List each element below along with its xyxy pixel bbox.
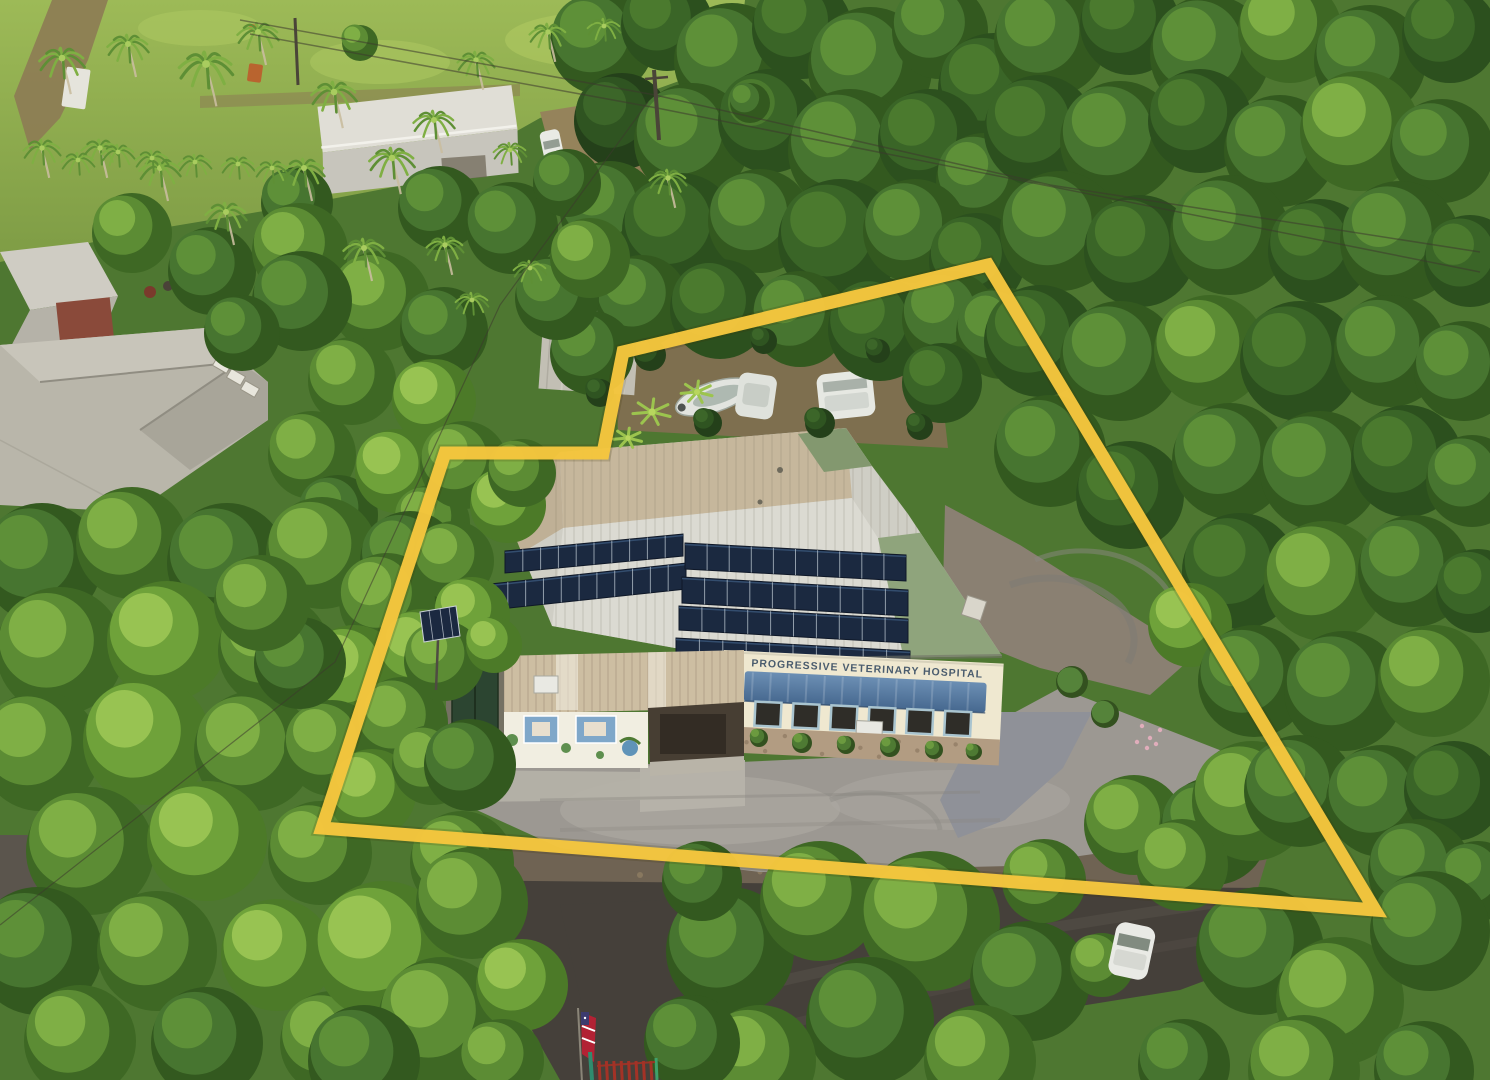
gate-bar bbox=[643, 1061, 644, 1080]
pink-flower bbox=[1158, 728, 1162, 732]
aerial-photo-frame: PROGRESSIVE VETERINARY HOSPITAL bbox=[0, 0, 1490, 1080]
tree bbox=[214, 555, 310, 651]
green-gate-post bbox=[656, 1058, 657, 1080]
white-car-yard bbox=[734, 372, 778, 421]
pink-flower bbox=[1140, 724, 1144, 728]
bush bbox=[1056, 666, 1088, 698]
tree bbox=[550, 218, 630, 298]
bush bbox=[792, 733, 812, 753]
bush bbox=[880, 737, 900, 757]
tree bbox=[533, 149, 601, 217]
bush bbox=[1091, 700, 1119, 728]
window bbox=[754, 702, 781, 727]
aerial-photo: PROGRESSIVE VETERINARY HOSPITAL bbox=[0, 0, 1490, 1080]
building-facade: PROGRESSIVE VETERINARY HOSPITAL bbox=[719, 650, 1004, 766]
mural-globe-art bbox=[622, 740, 638, 756]
tree bbox=[1370, 871, 1490, 991]
pink-flower bbox=[1135, 740, 1139, 744]
tree bbox=[1378, 625, 1490, 737]
window bbox=[830, 705, 857, 730]
gate-bar bbox=[651, 1061, 652, 1080]
tree bbox=[806, 957, 934, 1080]
gate-bar bbox=[606, 1061, 607, 1080]
gate-bar bbox=[599, 1061, 600, 1080]
tree bbox=[902, 343, 982, 423]
pink-flower bbox=[1145, 746, 1149, 750]
pink-flower bbox=[1148, 736, 1152, 740]
tree bbox=[147, 781, 267, 901]
window bbox=[792, 703, 819, 728]
tree bbox=[308, 337, 396, 425]
window bbox=[906, 709, 933, 734]
tree bbox=[476, 939, 568, 1031]
tree bbox=[92, 193, 172, 273]
green-gate-post bbox=[590, 1052, 592, 1080]
orange-mower bbox=[247, 63, 263, 83]
tree bbox=[204, 295, 280, 371]
window bbox=[944, 711, 971, 736]
tree bbox=[466, 617, 522, 673]
pink-flower bbox=[1154, 742, 1158, 746]
rooftop-ac-unit bbox=[534, 676, 558, 693]
tree bbox=[424, 719, 516, 811]
